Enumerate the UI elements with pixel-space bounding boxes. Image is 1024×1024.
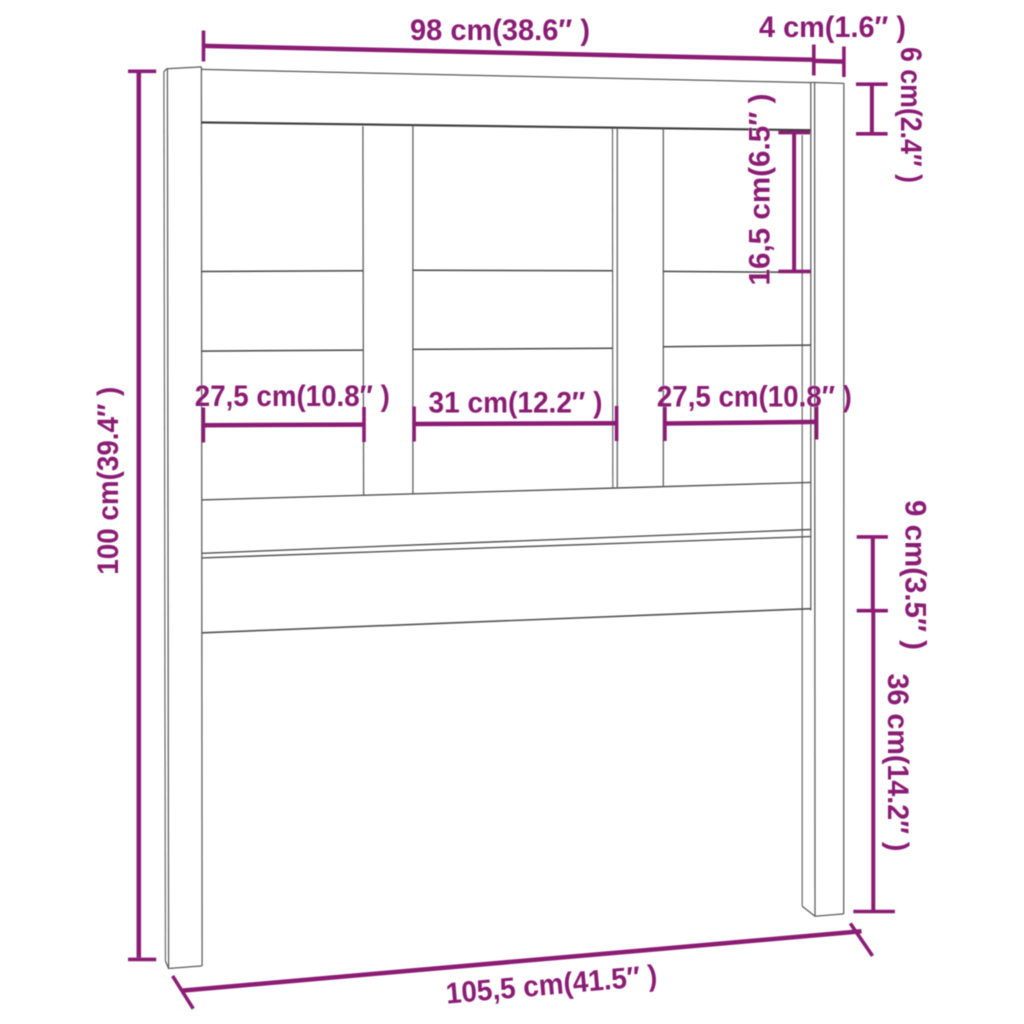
svg-text:4 cm(1.6″ ): 4 cm(1.6″ ) — [759, 11, 906, 44]
svg-text:31 cm(12.2″ ): 31 cm(12.2″ ) — [429, 387, 603, 420]
svg-text:27,5 cm(10.8″ ): 27,5 cm(10.8″ ) — [657, 381, 852, 414]
svg-text:100 cm(39.4″ ): 100 cm(39.4″ ) — [92, 387, 125, 575]
svg-text:36 cm(14.2″ ): 36 cm(14.2″ ) — [881, 674, 914, 852]
svg-text:16,5 cm(6.5″ ): 16,5 cm(6.5″ ) — [744, 93, 777, 285]
svg-text:27,5 cm(10.8″ ): 27,5 cm(10.8″ ) — [195, 380, 390, 413]
svg-text:98 cm(38.6″ ): 98 cm(38.6″ ) — [410, 14, 590, 47]
svg-text:6 cm(2.4″ ): 6 cm(2.4″ ) — [894, 47, 927, 183]
svg-text:9 cm(3.5″ ): 9 cm(3.5″ ) — [899, 500, 932, 650]
